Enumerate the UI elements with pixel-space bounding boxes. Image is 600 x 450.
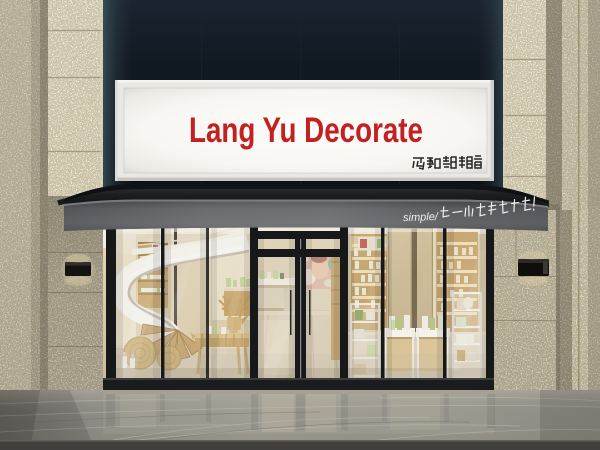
svg-text:Lang Yu Decorate: Lang Yu Decorate — [189, 111, 423, 150]
svg-text:simple/: simple/ — [403, 211, 439, 224]
